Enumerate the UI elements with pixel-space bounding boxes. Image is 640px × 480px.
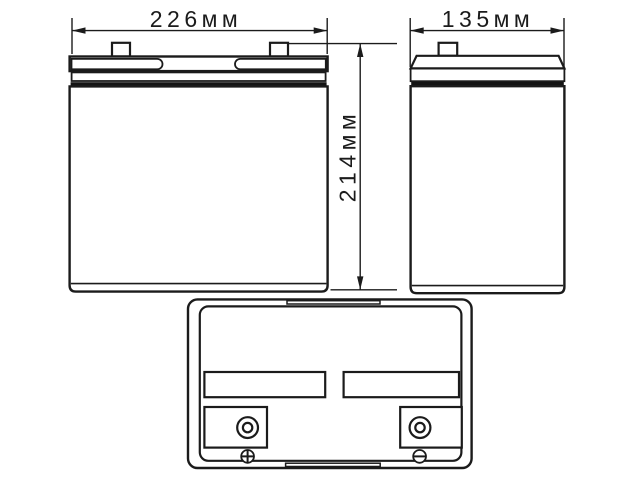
front-terminal-left [112,43,130,57]
terminal-post-right-outer [410,417,431,438]
dim-width-label: 226мм [150,6,243,32]
front-terminal-right [270,43,288,57]
dim-height-label: 214мм [335,110,361,203]
negative-terminal-mark [413,450,426,463]
dim-height-arrow-top [357,44,363,57]
top-view [188,299,472,468]
side-lid [411,56,565,69]
side-seam-band [411,68,565,81]
dim-width-arrow-left [72,27,86,33]
top-vent-strip-left [204,372,325,397]
front-view [70,43,328,292]
technical-drawing-svg: 226мм 135мм 214мм [0,0,640,480]
dim-depth-arrow-right [551,27,565,33]
top-terminal-block-left [204,407,267,448]
side-body [411,86,565,293]
dim-width-arrow-right [314,27,328,33]
dim-depth-arrow-left [410,27,424,33]
dim-height-arrow-bottom [357,276,363,289]
terminal-post-left-outer [237,417,258,438]
top-terminal-block-right [400,407,462,448]
side-view [411,43,565,293]
side-terminal [439,43,458,56]
top-vent-strip-right [344,372,459,397]
battery-dimensions-diagram: 226мм 135мм 214мм [0,0,640,480]
front-seam-band [72,72,326,81]
front-body [70,86,328,291]
dim-depth-label: 135мм [442,6,535,32]
positive-terminal-mark [241,450,254,463]
